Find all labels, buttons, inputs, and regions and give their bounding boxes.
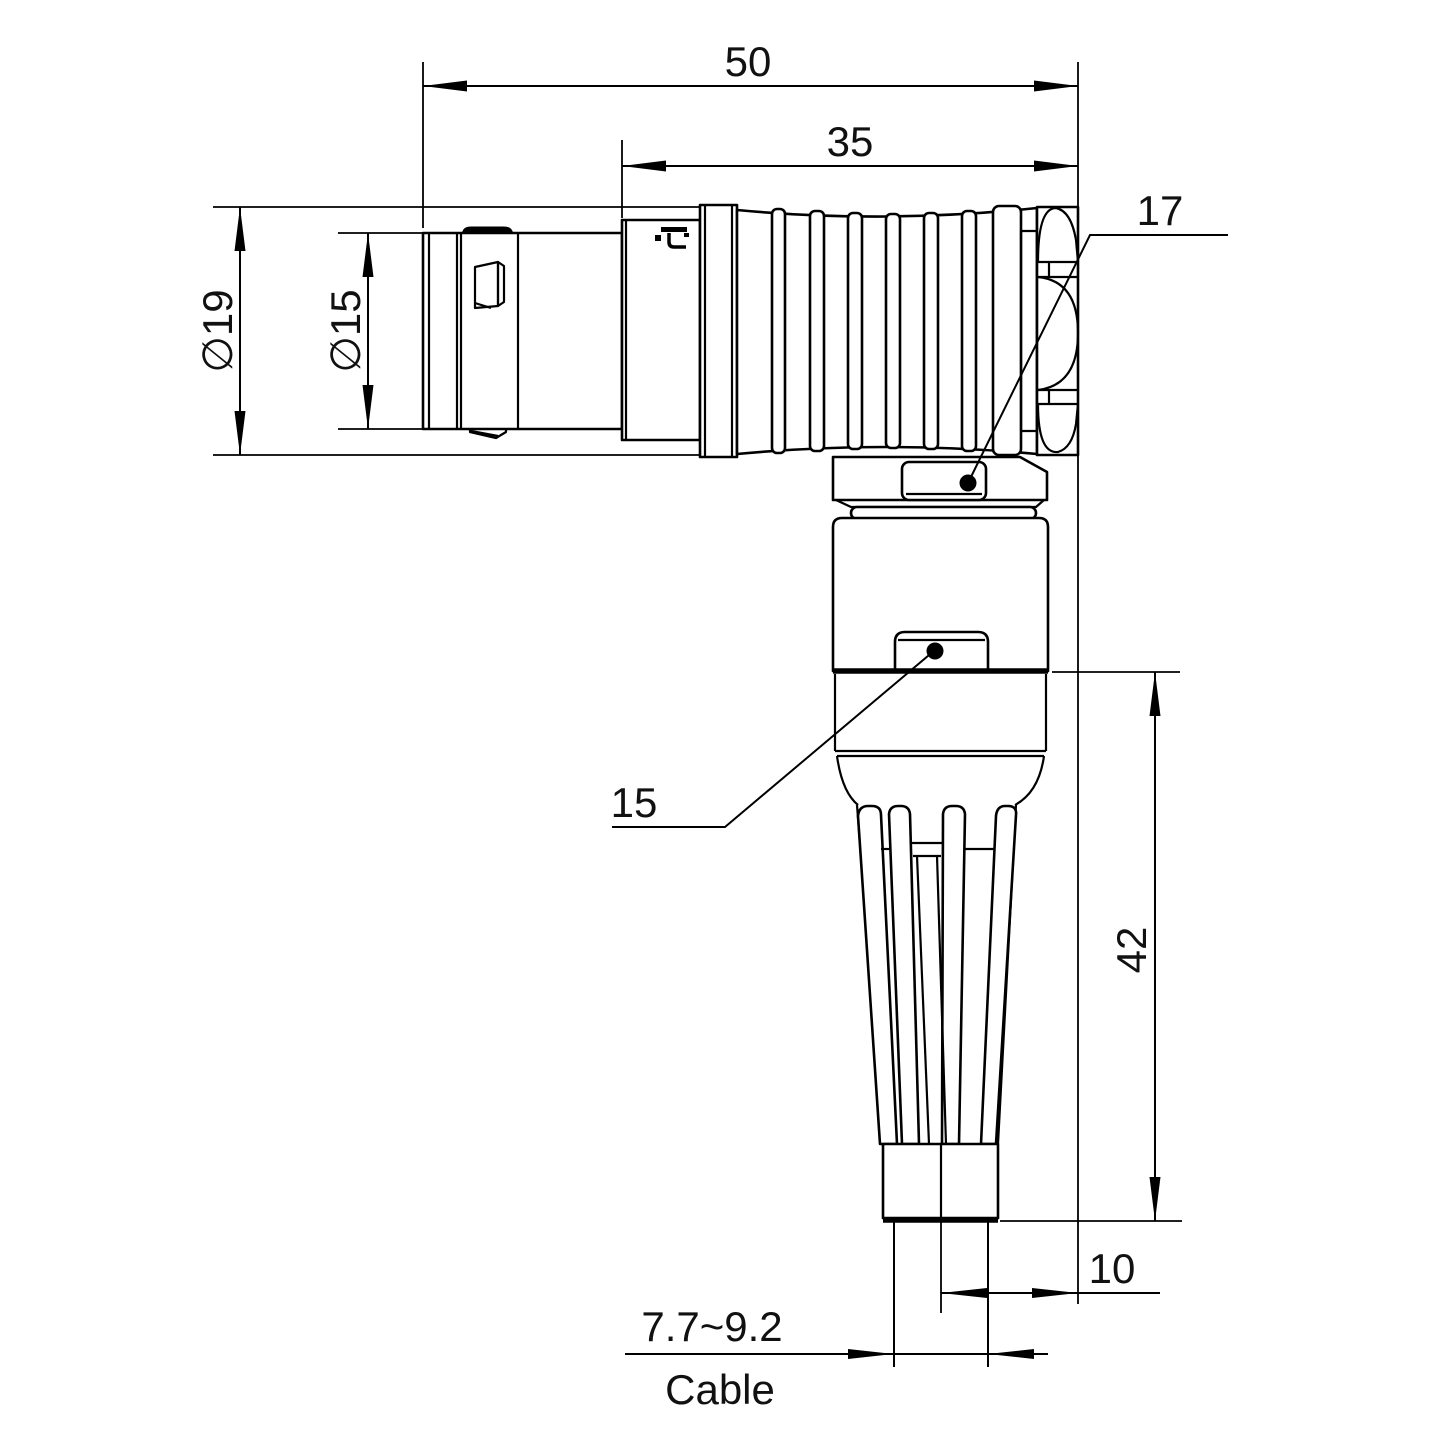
flex-rib-section xyxy=(737,206,1037,455)
elbow-window xyxy=(895,632,988,671)
connector-outline xyxy=(423,205,1078,1367)
dim-rear-body-length-label: 35 xyxy=(827,118,874,165)
cable-sleeve xyxy=(883,1144,998,1220)
dim-axis-offset-label: 10 xyxy=(1089,1245,1136,1292)
dim-shell-diameter-label: ∅19 xyxy=(194,289,241,372)
dim-vertical-length-label: 42 xyxy=(1108,927,1155,974)
latch-foot xyxy=(470,429,506,438)
dim-overall-length: 50 xyxy=(423,38,1078,228)
elbow-band xyxy=(833,457,1047,507)
dim-vertical-length: 42 xyxy=(1000,672,1182,1221)
dim-rear-body-length: 35 xyxy=(622,118,1078,218)
collar-ring xyxy=(700,205,737,457)
leader-elbow-nut-15: 15 xyxy=(611,650,935,827)
engineering-drawing-canvas: Lightany xyxy=(0,0,1440,1440)
band-window xyxy=(902,462,986,500)
dim-axis-offset: 10 xyxy=(941,1245,1160,1298)
front-barrel xyxy=(423,227,622,439)
elbow-body xyxy=(833,518,1048,671)
leader-hex-nut-label: 17 xyxy=(1137,187,1184,234)
connector-dimension-drawing: Lightany xyxy=(0,0,1440,1440)
dim-cable-range-label: 7.7~9.2 xyxy=(641,1303,782,1350)
latch-cap xyxy=(462,227,513,234)
strain-relief-boot xyxy=(835,674,1046,1144)
dim-cable-range: 7.7~9.2 Cable xyxy=(625,1303,1048,1413)
dim-front-diameter-label: ∅15 xyxy=(322,289,369,372)
leader-elbow-nut-label: 15 xyxy=(611,779,658,826)
mid-shell xyxy=(622,220,700,440)
dim-overall-length-label: 50 xyxy=(725,38,772,85)
cable-label: Cable xyxy=(665,1366,775,1413)
dim-front-diameter: ∅15 xyxy=(322,233,424,429)
